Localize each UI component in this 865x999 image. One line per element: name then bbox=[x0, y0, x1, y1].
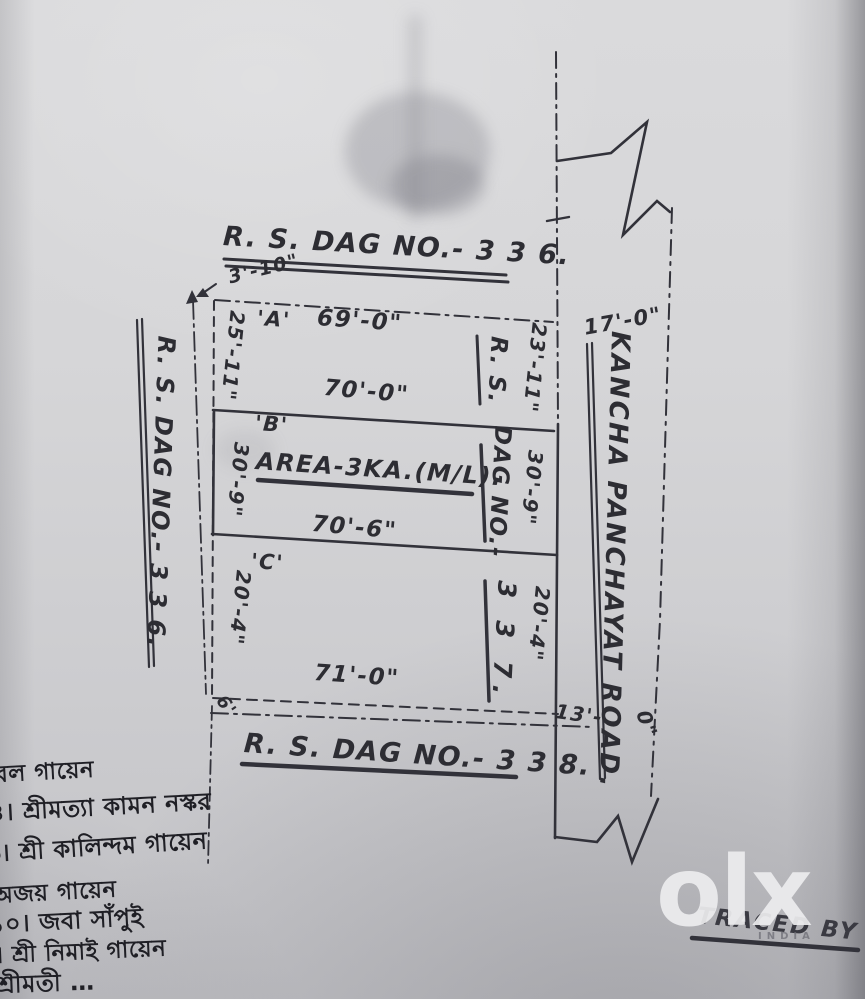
olx-watermark: olx bbox=[656, 844, 811, 940]
rs-underline bbox=[477, 336, 480, 404]
dag-label-rs: R. S. bbox=[482, 336, 512, 405]
road-break-symbol-bottom bbox=[555, 799, 658, 862]
road-top-tick bbox=[547, 217, 569, 221]
handwritten-note-line: বল গায়েন bbox=[0, 751, 95, 795]
dag-338-boundary bbox=[211, 713, 592, 727]
plot-a-name: 'A' bbox=[256, 306, 291, 332]
west-dimension-line bbox=[193, 300, 206, 694]
handwritten-note-line: শ্রীমতী … bbox=[0, 964, 95, 999]
road-break-symbol-top bbox=[557, 122, 670, 235]
olx-watermark-sub: INDIA bbox=[758, 931, 815, 942]
survey-sketch-photo: R. S. DAG NO.- 3 3 6. 3'-10" 'A' 69'-0" … bbox=[0, 0, 865, 999]
road-west-boundary-upper bbox=[556, 52, 558, 424]
plot-b-west-side bbox=[213, 411, 214, 535]
plot-b-name: 'B' bbox=[254, 411, 289, 437]
